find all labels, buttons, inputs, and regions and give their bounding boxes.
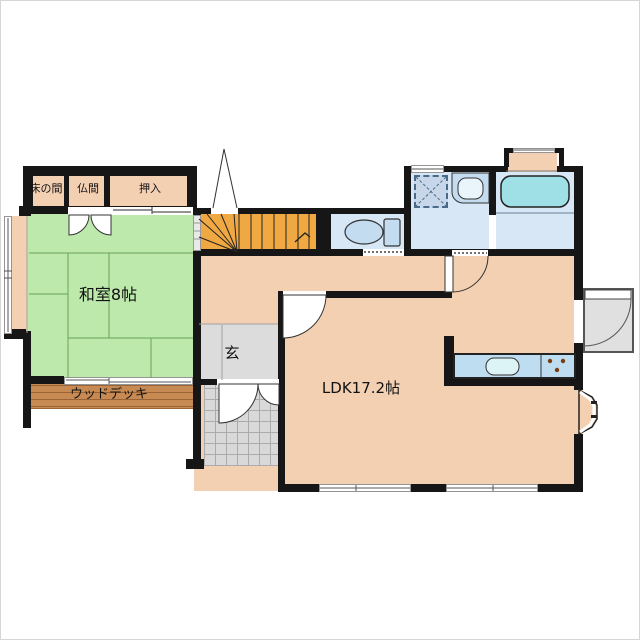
kitchen-back-door-gap [574, 300, 583, 343]
shower-pan-icon [414, 175, 448, 208]
window-west [4, 216, 12, 334]
label-oshiire: 押入 [129, 183, 171, 195]
window-ldk-south-2 [446, 484, 538, 492]
butsuma-door-gap [68, 207, 112, 215]
wall [23, 376, 64, 384]
label-ldk: LDK17.2帖 [311, 380, 411, 397]
wall [194, 379, 219, 385]
label-butsuma: 仏間 [69, 183, 107, 195]
toilet-door-gap [363, 249, 404, 256]
oshiire-sliding-door [111, 207, 193, 215]
stairs [199, 214, 316, 251]
washroom-door-gap [452, 250, 488, 256]
back-door-swing [213, 149, 237, 208]
bay-window-floor-gap [574, 390, 583, 434]
floor-plan: 床の間 仏間 押入 和室8帖 ウッドデッキ 玄 LDK17.2帖 [0, 0, 640, 640]
room-bathroom [496, 172, 574, 249]
window-washroom-north [411, 165, 444, 173]
wall [411, 249, 583, 256]
wall [278, 291, 285, 491]
wall [444, 379, 583, 386]
window-washitsu-deck [64, 377, 193, 385]
window-ldk-south-1 [319, 484, 411, 492]
back-door-platform [583, 288, 634, 353]
label-wood-deck: ウッドデッキ [63, 388, 155, 402]
washitsu-fusuma-east [193, 215, 201, 251]
wall [186, 459, 204, 469]
back-door-gap [211, 208, 238, 214]
room-toilet [331, 214, 404, 249]
bathroom-door-gap [489, 215, 496, 249]
label-genkan: 玄 [222, 345, 242, 362]
label-washitsu: 和室8帖 [63, 286, 153, 304]
ldk-door-gap [283, 291, 326, 298]
entrance-porch-tiles [204, 384, 279, 466]
label-tokonoma: 床の間 [23, 183, 69, 195]
wall [23, 166, 197, 176]
wall [404, 166, 411, 256]
bath-window-bay-floor [506, 153, 557, 172]
kitchen-counter [453, 353, 576, 379]
engawa-strip [11, 216, 28, 334]
wall [559, 148, 564, 167]
entry-door-threshold [217, 379, 279, 385]
window-bath-bay [513, 148, 555, 153]
